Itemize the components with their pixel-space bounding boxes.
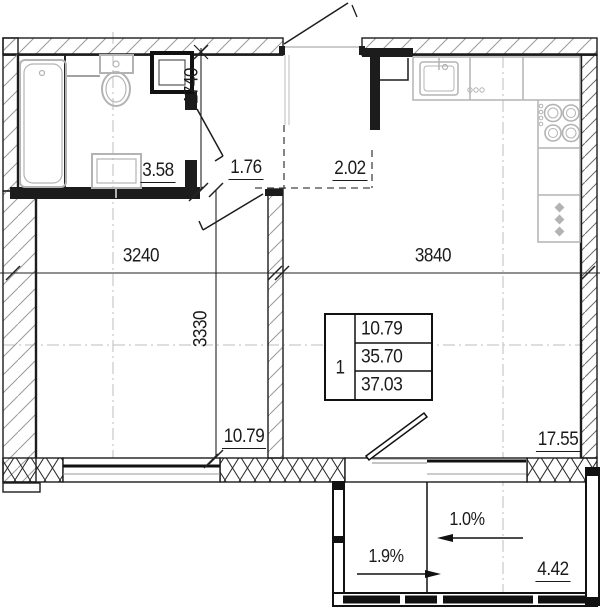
- bathroom-area-label: 3.58: [140, 161, 175, 183]
- kitchen-counter: [413, 57, 580, 242]
- floor-plan-linework: [0, 0, 600, 611]
- bottom-wall: [3, 458, 597, 492]
- slope-arrow-left: [357, 570, 441, 578]
- entry-jamb-guides: [285, 55, 289, 125]
- dim-3240-label: 3240: [123, 247, 159, 266]
- window-left: [63, 458, 220, 482]
- bathtub: [20, 60, 66, 187]
- partition-wall: [265, 189, 283, 458]
- info-total-area: 37.03: [361, 376, 402, 395]
- right-wall: [581, 55, 597, 458]
- info-living-area: 10.79: [361, 320, 402, 339]
- living-room-area-label: 10.79: [222, 427, 266, 449]
- floor-plan: 3.58 1.76 2.02 10.79 17.55 4.42 1.9% 1.0…: [0, 0, 600, 611]
- slope-arrow-right: [437, 534, 523, 542]
- balcony-window: [345, 458, 527, 482]
- kitchen-sink: [420, 58, 484, 95]
- info-area-excl-balcony: 35.70: [361, 348, 402, 367]
- toilet: [100, 55, 133, 106]
- dim-1740-label: 1740: [183, 68, 202, 104]
- entry-area-label: 2.02: [332, 159, 367, 181]
- top-wall: [3, 38, 597, 55]
- bottom-ledge: [3, 483, 40, 492]
- balcony-area-label: 4.42: [535, 560, 570, 582]
- entry-walls: [362, 48, 413, 130]
- slope-left-label: 1.9%: [368, 547, 403, 565]
- balcony-walls: [333, 468, 599, 606]
- section-lines: [3, 32, 583, 592]
- dimension-line-horizontal: [0, 266, 600, 280]
- stove: [539, 104, 579, 141]
- dim-3840-label: 3840: [415, 247, 451, 266]
- hallway-area-label: 1.76: [228, 158, 263, 180]
- info-unit-number: 1: [335, 359, 344, 378]
- kitchen-unit: [555, 203, 565, 237]
- slope-right-label: 1.0%: [449, 510, 484, 528]
- kitchen-living-area-label: 17.55: [536, 430, 580, 452]
- dim-3330-label: 3330: [192, 311, 211, 347]
- balcony-door: [366, 413, 427, 460]
- room-door: [199, 194, 263, 230]
